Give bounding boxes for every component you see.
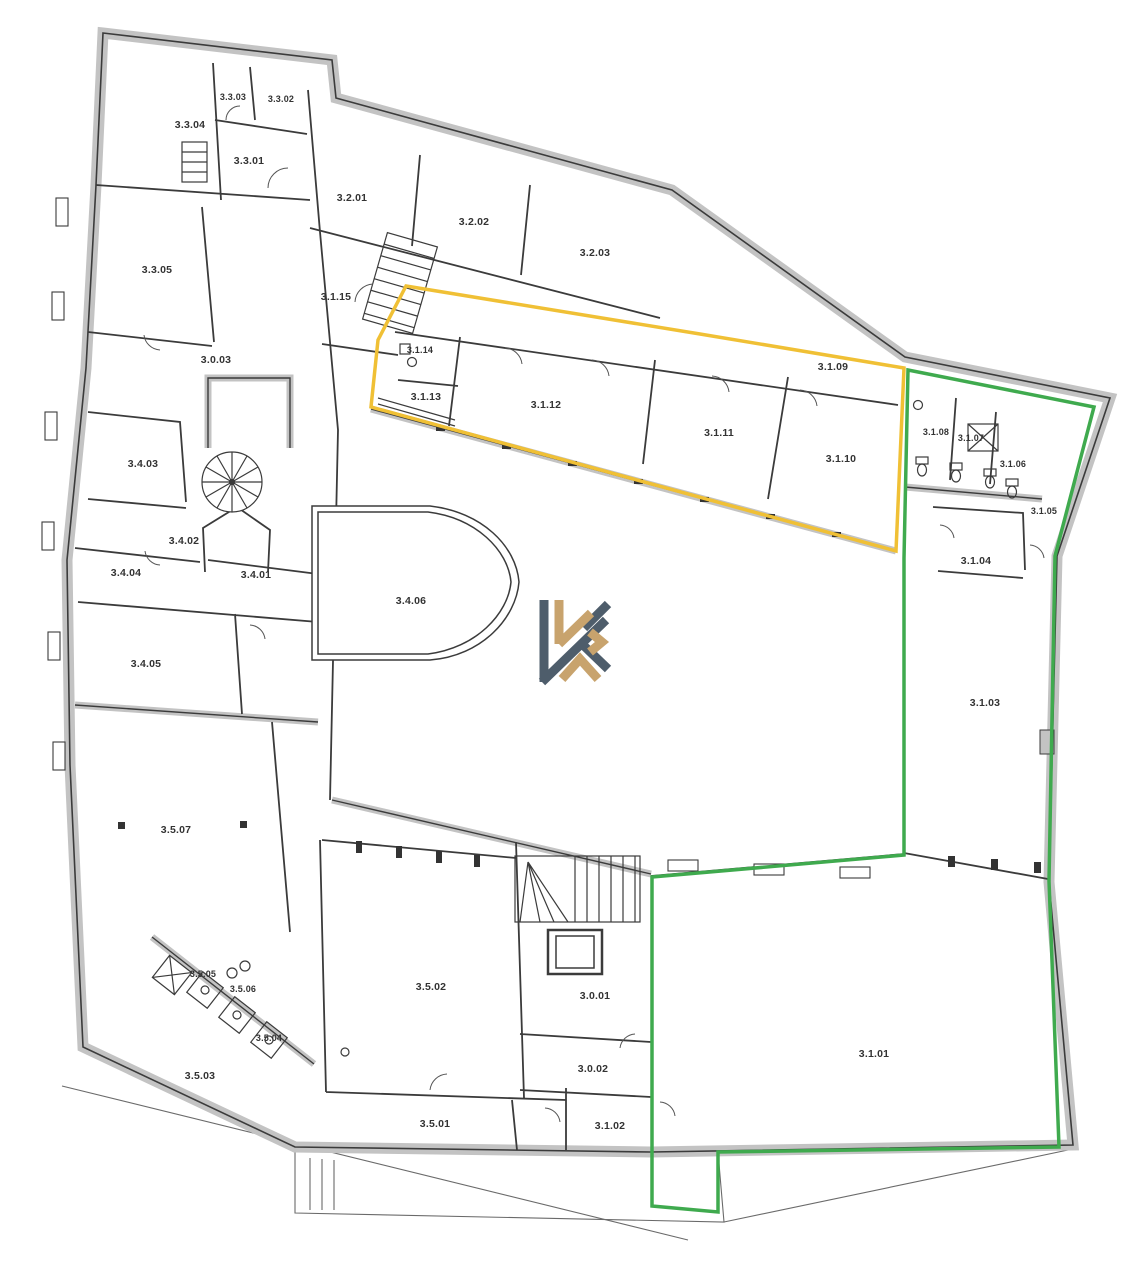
room-label: 3.1.06 xyxy=(1000,459,1026,469)
room-label: 3.5.07 xyxy=(161,824,191,836)
room-label: 3.0.03 xyxy=(201,354,231,366)
room-label: 3.5.03 xyxy=(185,1070,215,1082)
room-label: 3.4.06 xyxy=(396,595,426,607)
room-label: 3.1.12 xyxy=(531,399,561,411)
room-label: 3.3.05 xyxy=(142,264,172,276)
outer-walls xyxy=(67,33,1110,1152)
room-label: 3.2.01 xyxy=(337,192,367,204)
floor-plan-drawing xyxy=(0,0,1143,1280)
sanitary-fixtures xyxy=(152,344,1018,1058)
room-label: 3.1.14 xyxy=(407,345,433,355)
room-label: 3.4.03 xyxy=(128,458,158,470)
room-label: 3.1.09 xyxy=(818,361,848,373)
room-label: 3.3.01 xyxy=(234,155,264,167)
room-label: 3.1.02 xyxy=(595,1120,625,1132)
room-label: 3.2.02 xyxy=(459,216,489,228)
room-label: 3.1.03 xyxy=(970,697,1000,709)
room-label: 3.1.05 xyxy=(1031,506,1057,516)
room-label: 3.0.01 xyxy=(580,990,610,1002)
room-label: 3.2.03 xyxy=(580,247,610,259)
room-label: 3.5.06 xyxy=(230,984,256,994)
room-label: 3.5.01 xyxy=(420,1118,450,1130)
room-label: 3.1.10 xyxy=(826,453,856,465)
room-label: 3.5.02 xyxy=(416,981,446,993)
room-label: 3.3.02 xyxy=(268,94,294,104)
room-label: 3.4.01 xyxy=(241,569,271,581)
room-label: 3.1.04 xyxy=(961,555,991,567)
room-label: 3.4.02 xyxy=(169,535,199,547)
room-label: 3.4.05 xyxy=(131,658,161,670)
room-label: 3.1.11 xyxy=(704,427,734,439)
room-label: 3.5.04 xyxy=(256,1033,282,1043)
room-label: 3.1.07 xyxy=(958,433,984,443)
room-label: 3.5.05 xyxy=(190,969,216,979)
stair-flight-icon xyxy=(363,233,438,334)
room-label: 3.4.04 xyxy=(111,567,141,579)
room-label: 3.0.02 xyxy=(578,1063,608,1075)
stair-small-icon xyxy=(182,142,207,182)
room-label: 3.1.13 xyxy=(411,391,441,403)
room-label: 3.3.03 xyxy=(220,92,246,102)
apse-room-walls xyxy=(312,506,519,660)
company-logo xyxy=(542,600,608,682)
wc-stalls xyxy=(187,344,455,1058)
floor-plan-canvas: 3.3.04 3.3.03 3.3.02 3.3.01 3.2.01 3.2.0… xyxy=(0,0,1143,1280)
room-label: 3.1.15 xyxy=(321,291,351,303)
spiral-stair-icon xyxy=(202,452,262,512)
room-label: 3.1.01 xyxy=(859,1048,889,1060)
elevator-icon xyxy=(548,930,602,974)
room-label: 3.3.04 xyxy=(175,119,205,131)
room-label: 3.1.08 xyxy=(923,427,949,437)
